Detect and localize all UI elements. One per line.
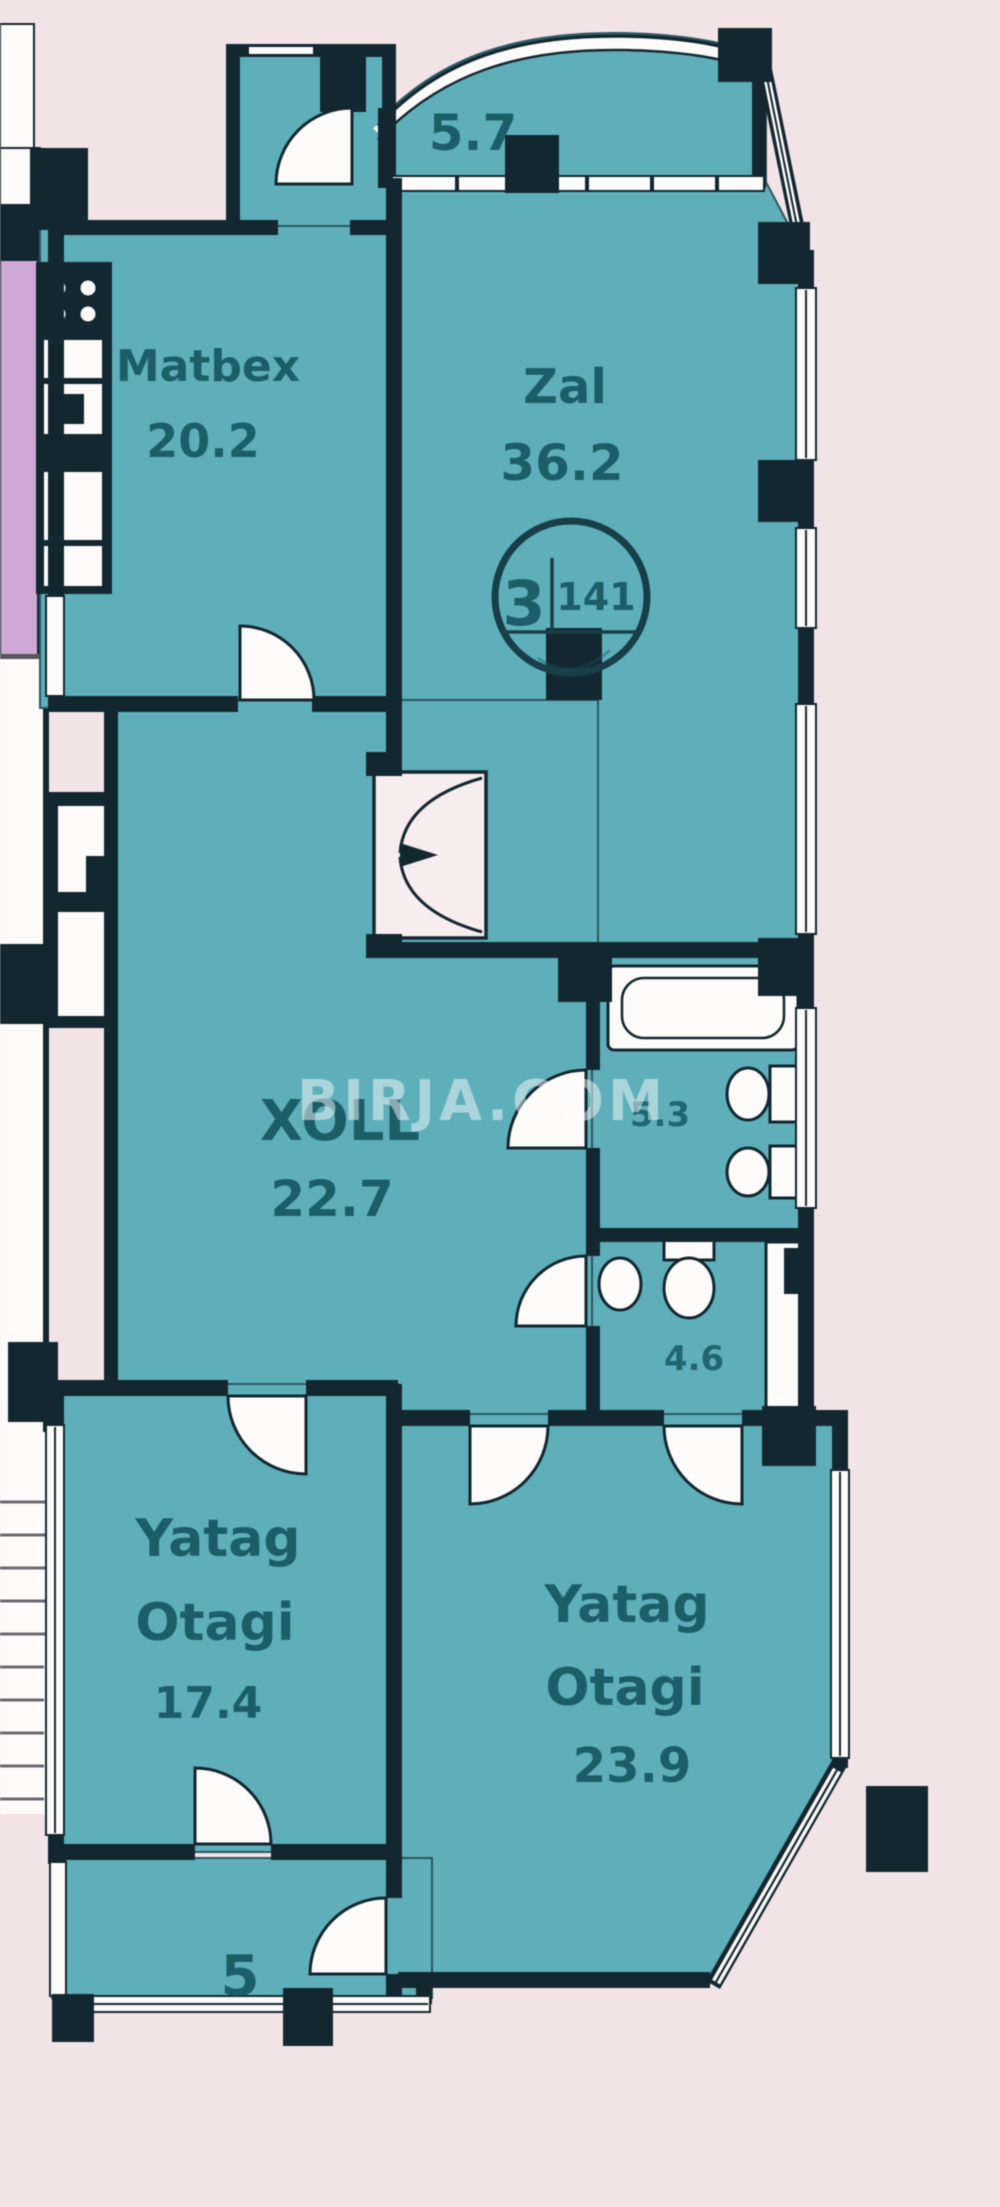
wall-segment — [104, 712, 118, 1390]
bedroom-2-area: 23.9 — [573, 1738, 691, 1794]
double-door — [366, 752, 486, 958]
stove-burner — [81, 281, 96, 296]
toilet-bowl — [727, 1068, 769, 1120]
window-tick — [455, 176, 459, 191]
window — [46, 596, 64, 696]
wall-segment — [48, 696, 238, 712]
column — [758, 938, 810, 996]
column — [762, 1406, 816, 1466]
bedroom-2-name-line1: Yatag — [543, 1575, 709, 1635]
living-area: 36.2 — [500, 434, 623, 492]
window-tick — [650, 176, 654, 191]
corridor — [0, 658, 46, 1432]
wall-segment — [586, 1326, 600, 1418]
wall-stub — [366, 752, 402, 776]
wc-sink — [599, 1258, 641, 1310]
column — [8, 1342, 58, 1422]
wall-strip — [0, 24, 34, 150]
wc-toilet-bowl — [664, 1258, 714, 1318]
bedroom-2-name-line2: Otagi — [545, 1658, 704, 1718]
kitchen-name: Matbex — [116, 341, 300, 392]
window — [50, 1862, 66, 1996]
column — [546, 628, 602, 700]
column — [320, 52, 366, 112]
column — [52, 1994, 94, 2042]
wall-segment — [312, 696, 398, 712]
kitchen-counter — [36, 262, 112, 594]
living-name: Zal — [523, 359, 607, 415]
badge-total-area: 141 — [556, 575, 635, 619]
balcony-bottom-area: 5 — [221, 1944, 260, 2009]
window — [248, 46, 314, 55]
column — [718, 28, 772, 82]
wall-segment — [386, 178, 402, 776]
floor-plan-image: 3 141 5.7 Matbex 20.2 Zal 36.2 XOLL 22.7… — [0, 0, 1000, 2207]
stove-burner — [81, 307, 96, 322]
wall-segment — [548, 1410, 664, 1426]
stairwell — [0, 1432, 50, 1814]
bidet-bowl — [727, 1148, 769, 1196]
bidet-tank — [770, 1146, 798, 1198]
column — [758, 222, 810, 284]
corridor-edge — [43, 658, 49, 1432]
kitchen-area: 20.2 — [146, 414, 260, 468]
wc-area: 4.6 — [664, 1339, 724, 1379]
wall-segment — [306, 1380, 398, 1396]
balcony-top-area: 5.7 — [429, 104, 518, 162]
column — [0, 944, 54, 1024]
window-tick — [585, 176, 589, 191]
wall-segment — [592, 1228, 812, 1242]
column — [283, 1988, 333, 2046]
wall-segment — [386, 1384, 402, 1898]
wall-segment — [398, 1972, 710, 1988]
wall-stub — [366, 934, 402, 958]
wall-segment — [271, 1844, 398, 1860]
window — [392, 176, 764, 191]
wall-segment — [48, 1380, 228, 1396]
bedroom-1-name-line1: Yatag — [134, 1509, 300, 1569]
hall-area: 22.7 — [270, 1170, 393, 1228]
wall-segment — [226, 44, 240, 226]
bedroom-1-name-line2: Otagi — [135, 1593, 294, 1653]
column — [558, 942, 612, 1002]
neighbor-apartment — [0, 260, 38, 660]
badge-room-count: 3 — [502, 567, 545, 640]
wall-segment — [48, 1844, 195, 1860]
wall-segment — [398, 1410, 470, 1426]
window-tick — [715, 176, 719, 191]
bedroom-1-area: 17.4 — [154, 1678, 263, 1729]
column — [758, 460, 810, 522]
toilet-tank — [770, 1066, 798, 1122]
wall-segment — [382, 55, 396, 188]
column — [30, 148, 88, 230]
column — [866, 1786, 928, 1872]
watermark: BIRJA.COM — [297, 1069, 667, 1134]
